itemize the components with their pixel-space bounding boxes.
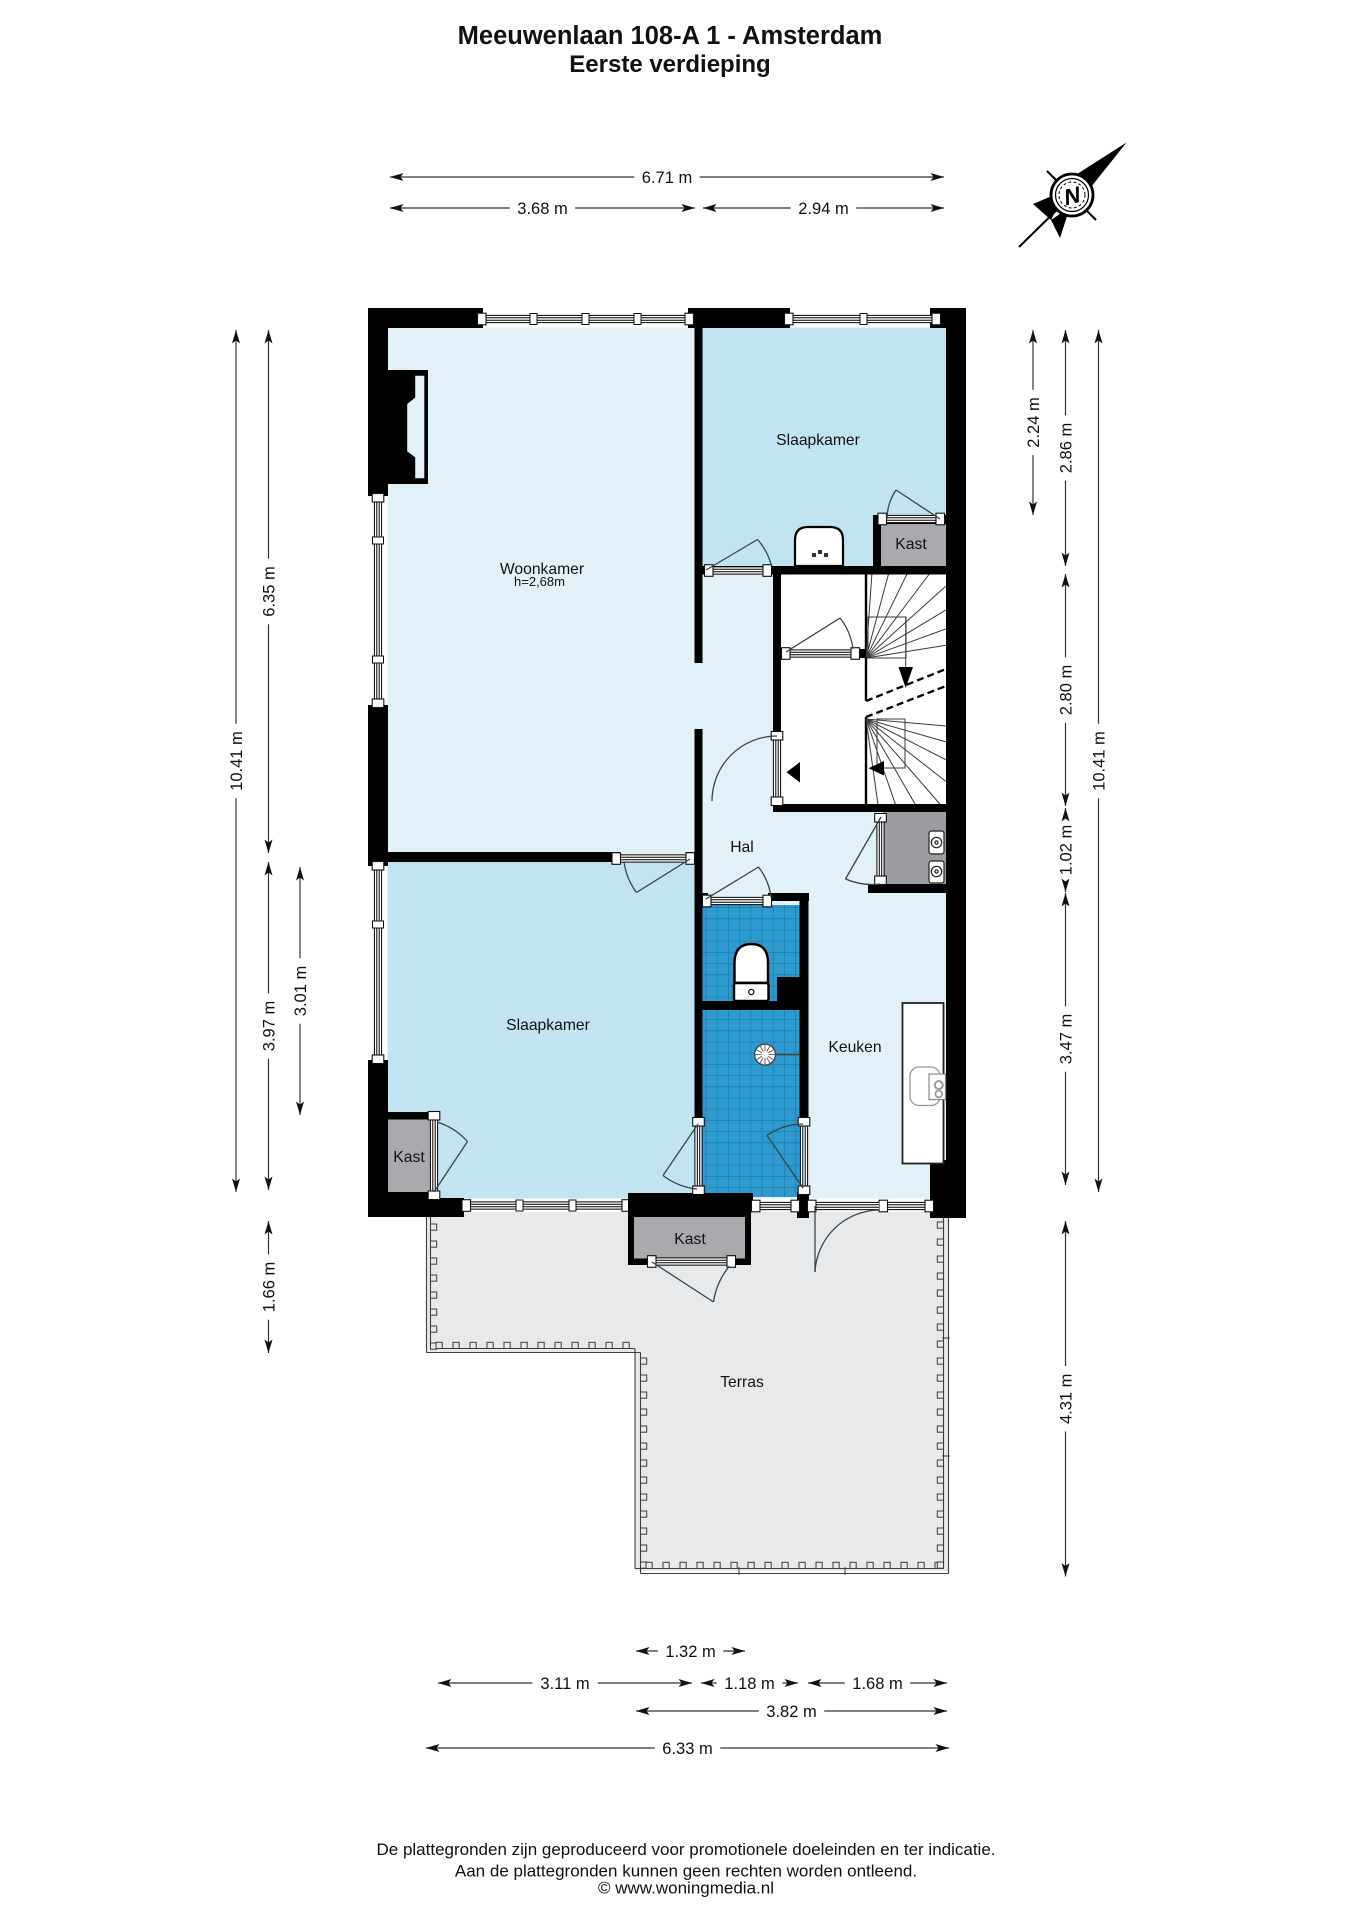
svg-text:Hal: Hal — [730, 839, 754, 856]
svg-text:3.11 m: 3.11 m — [540, 1675, 589, 1693]
svg-text:3.68 m: 3.68 m — [517, 200, 567, 218]
svg-text:6.33 m: 6.33 m — [662, 1740, 712, 1758]
svg-text:2.80 m: 2.80 m — [1057, 665, 1075, 715]
svg-text:Slaapkamer: Slaapkamer — [506, 1017, 590, 1034]
svg-text:Keuken: Keuken — [828, 1039, 881, 1056]
svg-text:Kast: Kast — [895, 536, 927, 553]
svg-text:Kast: Kast — [393, 1149, 425, 1166]
svg-text:© www.woningmedia.nl: © www.woningmedia.nl — [598, 1879, 774, 1898]
svg-text:De plattegronden zijn geproduc: De plattegronden zijn geproduceerd voor … — [376, 1840, 995, 1859]
svg-text:Meeuwenlaan 108-A 1 - Amsterda: Meeuwenlaan 108-A 1 - Amsterdam — [458, 22, 883, 50]
svg-text:3.97 m: 3.97 m — [260, 1001, 278, 1051]
svg-text:1.02 m: 1.02 m — [1057, 825, 1075, 875]
svg-text:3.01 m: 3.01 m — [292, 966, 310, 1016]
svg-text:10.41 m: 10.41 m — [1090, 731, 1108, 791]
svg-text:1.32 m: 1.32 m — [665, 1643, 715, 1661]
svg-text:Eerste verdieping: Eerste verdieping — [569, 51, 770, 78]
svg-text:Slaapkamer: Slaapkamer — [776, 432, 860, 449]
svg-text:3.82 m: 3.82 m — [766, 1703, 816, 1721]
svg-text:3.47 m: 3.47 m — [1057, 1014, 1075, 1064]
svg-text:2.24 m: 2.24 m — [1025, 397, 1043, 447]
svg-text:Kast: Kast — [674, 1231, 706, 1248]
svg-text:10.41 m: 10.41 m — [228, 731, 246, 791]
svg-text:1.18 m: 1.18 m — [724, 1675, 774, 1693]
svg-text:Terras: Terras — [720, 1374, 764, 1391]
svg-text:1.68 m: 1.68 m — [852, 1675, 902, 1693]
svg-text:h=2,68m: h=2,68m — [514, 574, 565, 589]
svg-text:6.71 m: 6.71 m — [642, 169, 692, 187]
svg-text:N: N — [1064, 180, 1080, 211]
svg-text:2.94 m: 2.94 m — [798, 200, 848, 218]
svg-text:2.86 m: 2.86 m — [1057, 423, 1075, 473]
svg-text:6.35 m: 6.35 m — [260, 566, 278, 616]
svg-text:1.66 m: 1.66 m — [260, 1262, 278, 1312]
svg-text:4.31 m: 4.31 m — [1057, 1374, 1075, 1424]
